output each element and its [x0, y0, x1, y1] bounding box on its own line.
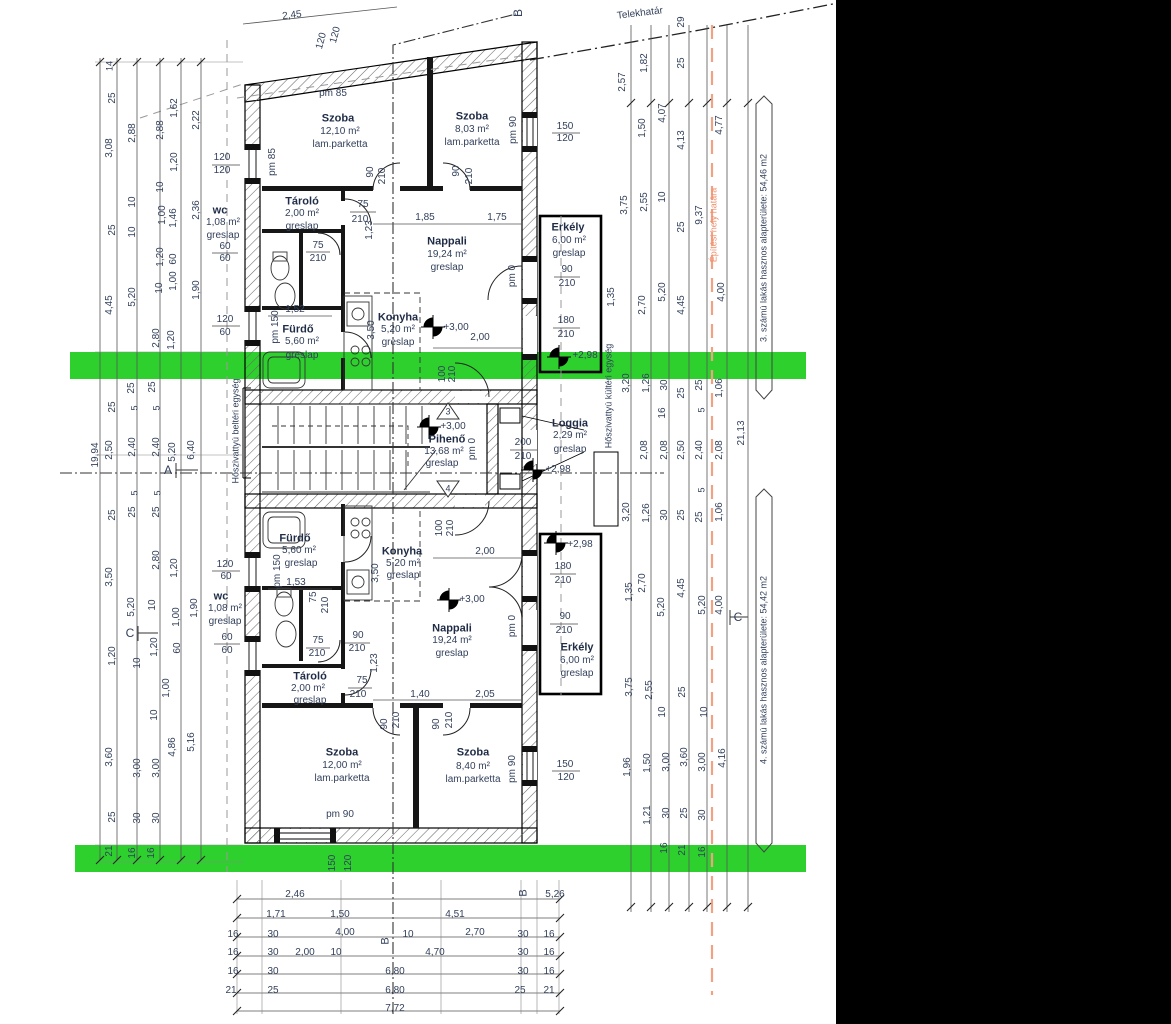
dim-label: 210	[559, 279, 576, 289]
dim-label: 3,00	[152, 758, 162, 777]
room-name: Szoba	[326, 748, 358, 759]
dim-label: 4,00	[717, 282, 727, 301]
dim-label: pm 150	[273, 554, 283, 587]
dim-label: 30	[152, 812, 162, 823]
dim-label: 7,72	[385, 1004, 404, 1014]
dim-label: 2,00	[470, 333, 489, 343]
dim-label: 90	[366, 166, 376, 177]
dim-label: 2,22	[192, 110, 202, 129]
dim-label: 25	[127, 382, 137, 393]
dim-label: 30	[517, 930, 528, 940]
dim-label: 25	[677, 387, 687, 398]
dim-label: 1,26	[642, 373, 652, 392]
room-area: 5,60 m²	[282, 546, 316, 556]
room-area: 6,00 m²	[560, 656, 594, 666]
dim-label: 3,50	[367, 320, 377, 339]
room-name: Szoba	[322, 114, 354, 125]
dim-label: 1,35	[625, 582, 635, 601]
dim-label: 90	[380, 718, 390, 729]
dim-label: 30	[517, 948, 528, 958]
dim-label: 1,75	[487, 213, 506, 223]
room-area: 2,29 m²	[553, 431, 587, 441]
dim-label: 5,20	[168, 442, 178, 461]
dim-label: 3,20	[622, 502, 632, 521]
dim-label: 2,08	[660, 440, 670, 459]
dim-label: 2,40	[128, 437, 138, 456]
dim-label: 4,00	[335, 928, 354, 938]
dim-label: 16	[698, 846, 708, 857]
room-name: Konyha	[378, 313, 418, 324]
section-marker-c: C	[126, 627, 135, 639]
dim-label: 1,23	[370, 653, 380, 672]
dim-label: 3,20	[622, 373, 632, 392]
dim-label: 75	[356, 676, 367, 686]
dim-label: 30	[267, 948, 278, 958]
dim-label: 180	[558, 316, 575, 326]
dim-label: 4,70	[425, 948, 444, 958]
room-name: Fürdő	[279, 534, 310, 545]
room-area: 19,24 m²	[432, 636, 471, 646]
dim-label: 120	[217, 315, 234, 325]
dim-label: 2,70	[465, 928, 484, 938]
room-floor: greslap	[426, 459, 459, 469]
dim-label: 16	[227, 930, 238, 940]
room-floor: lam.parketta	[312, 140, 367, 150]
dim-label: 1,82	[640, 53, 650, 72]
dim-label: pm 90	[508, 755, 518, 783]
dim-label: 21	[225, 986, 236, 996]
dim-label: 60	[219, 328, 230, 338]
dim-label: 5,20	[658, 282, 668, 301]
dim-label: 1,96	[623, 757, 633, 776]
dim-label: 5,20	[127, 597, 137, 616]
dim-label: 2,40	[152, 437, 162, 456]
dim-label: 16	[147, 847, 157, 858]
room-area: 5,60 m²	[285, 337, 319, 347]
level-marker: +2,98	[572, 351, 597, 361]
dim-label: 60	[221, 646, 232, 656]
dim-label: 25	[267, 986, 278, 996]
dim-label: pm 90	[509, 116, 519, 144]
dim-label: 2,45	[282, 10, 303, 22]
dim-label: 210	[349, 644, 366, 654]
dim-label: 60	[169, 253, 179, 264]
apartment3-area-label: 3. számú lakás hasznos alapterülete: 54,…	[760, 154, 769, 342]
dim-label: 120	[315, 32, 329, 51]
room-name: wc	[214, 592, 229, 603]
dim-label: 75	[312, 241, 323, 251]
dim-label: 1,85	[415, 213, 434, 223]
dim-label: 180	[555, 562, 572, 572]
dim-label: 21	[678, 844, 688, 855]
dim-label: 10	[155, 282, 165, 293]
dim-label: 30	[660, 379, 670, 390]
dim-label: 1,50	[330, 910, 349, 920]
dim-label: 1,53	[286, 578, 305, 588]
dim-label: 2,70	[638, 573, 648, 592]
dim-label: 25	[680, 807, 690, 818]
dim-label: 210	[350, 690, 367, 700]
dim-label: 2,36	[192, 200, 202, 219]
dim-label: 21,13	[737, 420, 747, 445]
dim-label: 25	[108, 92, 118, 103]
dim-label: 2,55	[640, 192, 650, 211]
dim-label: 60	[173, 642, 183, 653]
room-floor: greslap	[554, 445, 587, 455]
section-marker-b: B	[519, 889, 530, 896]
dim-label: 75	[357, 200, 368, 210]
dim-label: 16	[543, 930, 554, 940]
dim-label: 120	[214, 166, 231, 176]
dim-label: 5,20	[698, 595, 708, 614]
dim-label: 210	[309, 649, 326, 659]
dim-label: 3,50	[105, 567, 115, 586]
dim-label: 14	[106, 61, 115, 71]
dim-label: pm 90	[326, 810, 354, 820]
dim-label: 2,40	[695, 440, 705, 459]
dim-label: 10	[156, 181, 166, 192]
room-name: Nappali	[432, 624, 472, 635]
dim-label: 1,26	[642, 503, 652, 522]
dim-label: 10	[148, 599, 158, 610]
dim-label: 150	[557, 122, 574, 132]
dim-label: 30	[267, 930, 278, 940]
dim-label: 5	[154, 490, 163, 495]
room-area: 12,10 m²	[320, 127, 359, 137]
dim-label: 10	[658, 191, 668, 202]
dim-label: 210	[321, 597, 331, 614]
dim-label: 1,90	[190, 598, 200, 617]
room-area: 12,00 m²	[322, 761, 361, 771]
dim-label: 4,45	[677, 295, 687, 314]
dim-label: 1,00	[169, 271, 179, 290]
dim-label: 21	[105, 845, 115, 856]
room-area: 13,68 m²	[424, 447, 463, 457]
dim-label: 210	[310, 254, 327, 264]
apartment4-area-label: 4. számú lakás hasznos alapterülete: 54,…	[760, 576, 769, 764]
dim-label: 210	[446, 520, 456, 537]
dim-label: 1,23	[365, 220, 375, 239]
room-area: 1,08 m²	[208, 604, 242, 614]
dim-label: 200	[515, 438, 532, 448]
dim-label: 4,13	[677, 130, 687, 149]
dim-label: 1,20	[167, 330, 177, 349]
dim-label: 29	[677, 16, 687, 27]
section-marker-a: A	[164, 464, 172, 476]
dim-label: 1,06	[715, 502, 725, 521]
dim-label: 2,70	[638, 295, 648, 314]
dim-label: 210	[555, 576, 572, 586]
dim-label: 4,51	[445, 910, 464, 920]
room-area: 8,40 m²	[456, 762, 490, 772]
room-floor: lam.parketta	[444, 138, 499, 148]
black-panel	[836, 0, 1171, 1024]
room-area: 2,00 m²	[285, 209, 319, 219]
dim-label: 1,52	[285, 305, 304, 315]
room-name: Nappali	[427, 237, 467, 248]
room-floor: greslap	[286, 222, 319, 232]
dim-label: 30	[662, 807, 672, 818]
room-name: Pihenő	[429, 435, 466, 446]
dim-label: 210	[392, 712, 402, 729]
dim-label: 1,40	[410, 690, 429, 700]
dim-label: 16	[227, 948, 238, 958]
dim-label: 210	[378, 168, 388, 185]
room-name: Erkély	[560, 643, 593, 654]
room-area: 19,24 m²	[427, 250, 466, 260]
dim-label: 3,75	[625, 677, 635, 696]
dim-label: 21	[543, 986, 554, 996]
section-triangle: 4	[445, 485, 450, 494]
dim-label: 2,80	[152, 550, 162, 569]
dim-label: 5,20	[128, 287, 138, 306]
room-floor: lam.parketta	[445, 775, 500, 785]
dim-label: 210	[556, 626, 573, 636]
dim-label: 120	[329, 26, 343, 45]
dim-label: 16	[543, 967, 554, 977]
dim-label: 4,77	[715, 115, 725, 134]
dim-label: 2,08	[640, 440, 650, 459]
dim-label: 16	[660, 842, 670, 853]
dim-label: 25	[152, 506, 162, 517]
dim-label: 5	[131, 490, 140, 495]
section-marker-b: B	[512, 9, 524, 17]
dim-label: 5	[153, 405, 162, 410]
dim-label: 3,60	[680, 747, 690, 766]
dim-label: 25	[108, 811, 118, 822]
dim-label: 5	[698, 407, 707, 412]
dim-label: 2,88	[156, 120, 166, 139]
room-name: Fürdő	[282, 325, 313, 336]
dim-label: 1,90	[192, 280, 202, 299]
dim-label: 25	[108, 401, 118, 412]
dim-label: 25	[108, 509, 118, 520]
dim-label: 60	[219, 254, 230, 264]
dim-label: 30	[133, 812, 143, 823]
room-name: Szoba	[456, 112, 488, 123]
room-area: 8,03 m²	[455, 125, 489, 135]
dim-label: 30	[660, 509, 670, 520]
dim-label: 10	[658, 706, 668, 717]
dim-label: 2,55	[645, 680, 655, 699]
room-floor: greslap	[209, 617, 242, 627]
dim-label: 3,00	[133, 758, 143, 777]
room-floor: greslap	[387, 571, 420, 581]
construction-limit-label: Építési hely határa	[710, 188, 719, 263]
dim-label: 2,08	[715, 440, 725, 459]
room-floor: greslap	[207, 231, 240, 241]
room-name: wc	[213, 206, 228, 217]
dim-label: 210	[445, 712, 455, 729]
dim-label: 25	[148, 381, 158, 392]
room-floor: lam.parketta	[314, 774, 369, 784]
dim-label: 10	[133, 657, 143, 668]
room-area: 1,08 m²	[206, 218, 240, 228]
dim-label: 16	[128, 847, 138, 858]
floorplan-page: 2,45120120BTelekhatár19,9414253,08254,45…	[0, 0, 1171, 1024]
dim-label: 90	[452, 165, 462, 176]
dim-label: pm 0	[508, 615, 518, 637]
dim-label: 1,00	[158, 205, 168, 224]
dim-label: 10	[330, 948, 341, 958]
dim-label: 6,40	[187, 440, 197, 459]
room-name: Tároló	[293, 672, 327, 683]
dim-label: 60	[221, 633, 232, 643]
dim-label: 90	[559, 612, 570, 622]
dim-label: 90	[352, 631, 363, 641]
level-marker: +3,00	[440, 422, 465, 432]
dim-label: 25	[695, 379, 705, 390]
dim-label: 90	[561, 265, 572, 275]
room-floor: greslap	[294, 696, 327, 706]
room-name: Loggia	[552, 419, 588, 430]
plot-boundary-label: Telekhatár	[616, 6, 663, 22]
dim-label: 25	[677, 221, 687, 232]
level-marker: +3,00	[443, 323, 468, 333]
room-name: Tároló	[285, 197, 319, 208]
dim-label: 25	[695, 511, 705, 522]
room-floor: greslap	[436, 649, 469, 659]
dim-label: 2,50	[105, 440, 115, 459]
dim-label: 9,37	[695, 205, 705, 224]
dim-label: 10	[128, 226, 138, 237]
dim-label: 210	[448, 366, 458, 383]
dim-label: 2,50	[677, 440, 687, 459]
dim-label: 4,86	[168, 737, 178, 756]
dim-label: 1,50	[638, 118, 648, 137]
room-area: 5,20 m²	[386, 559, 420, 569]
dim-label: 16	[658, 407, 668, 418]
dim-label: 2,57	[618, 72, 628, 91]
dim-label: 3,75	[620, 195, 630, 214]
dim-label: 150	[557, 760, 574, 770]
dim-label: 1,50	[643, 753, 653, 772]
dim-label: 4,07	[658, 103, 668, 122]
dim-label: 120	[557, 134, 574, 144]
dim-label: 3,00	[698, 752, 708, 771]
dim-label: 5,16	[187, 732, 197, 751]
dim-label: 25	[677, 509, 687, 520]
heat-pump-indoor-label: Hőszivattyú beltéri egység	[232, 378, 241, 483]
dim-label: 1,20	[170, 558, 180, 577]
dim-label: 1,21	[643, 805, 653, 824]
room-area: 2,00 m²	[291, 684, 325, 694]
dim-label: 25	[514, 986, 525, 996]
dim-label: 4,45	[677, 578, 687, 597]
level-marker: +3,00	[459, 595, 484, 605]
room-floor: greslap	[431, 263, 464, 273]
dim-label: 2,80	[152, 328, 162, 347]
dim-label: 2,88	[128, 123, 138, 142]
dim-label: 60	[220, 572, 231, 582]
dim-label: 10	[128, 196, 138, 207]
dim-label: 25	[108, 224, 118, 235]
dim-label: 30	[517, 967, 528, 977]
dim-label: 30	[698, 809, 708, 820]
dim-label: 1,00	[162, 678, 172, 697]
dim-label: 1,00	[172, 607, 182, 626]
room-name: Konyha	[382, 547, 422, 558]
dim-label: 2,46	[285, 890, 304, 900]
dim-label: 4,45	[105, 295, 115, 314]
dim-label: 1,35	[607, 287, 617, 306]
dim-label: 1,06	[715, 378, 725, 397]
room-area: 6,00 m²	[552, 236, 586, 246]
dim-label: 210	[558, 330, 575, 340]
level-marker: +2,98	[545, 465, 570, 475]
dim-label: pm 150	[271, 310, 281, 343]
dim-label: 16	[543, 948, 554, 958]
room-name: Erkély	[551, 223, 584, 234]
room-floor: greslap	[285, 559, 318, 569]
dim-label: 10	[700, 706, 710, 717]
dim-label: 4,16	[718, 748, 728, 767]
dim-label: 5,20	[657, 597, 667, 616]
dim-label: 10	[402, 930, 413, 940]
section-marker-c: C	[734, 611, 743, 623]
dim-label: 120	[558, 773, 575, 783]
dim-label: 3,00	[662, 752, 672, 771]
dim-label: 3,08	[105, 138, 115, 157]
dim-label: pm 85	[319, 89, 347, 99]
dim-label: 120	[344, 855, 354, 872]
room-name: Szoba	[457, 748, 489, 759]
dim-label: 1,20	[156, 247, 166, 266]
room-floor: greslap	[561, 669, 594, 679]
dim-label: 16	[227, 967, 238, 977]
dim-label: 19,94	[91, 442, 101, 467]
dim-label: 10	[150, 709, 160, 720]
dim-label: 1,62	[170, 98, 180, 117]
dim-label: 6,80	[385, 967, 404, 977]
dim-label: 2,00	[475, 547, 494, 557]
room-floor: greslap	[286, 351, 319, 361]
dim-label: 100	[435, 520, 445, 537]
dim-label: 30	[267, 967, 278, 977]
room-floor: greslap	[382, 338, 415, 348]
dim-label: 150	[328, 855, 338, 872]
dim-label: 2,00	[295, 948, 314, 958]
dim-label: 60	[219, 242, 230, 252]
dim-label: 1,20	[170, 152, 180, 171]
heat-pump-outdoor-label: Hőszivattyú kültéri egység	[605, 344, 614, 449]
dim-label: 120	[217, 560, 234, 570]
dim-label: 3,60	[105, 747, 115, 766]
room-area: 5,20 m²	[381, 325, 415, 335]
dim-label: 25	[128, 506, 138, 517]
section-triangle: 3	[445, 408, 450, 417]
dim-label: 25	[677, 57, 687, 68]
dim-label: 1,20	[150, 637, 160, 656]
dim-label: 1,71	[266, 910, 285, 920]
dim-label: 4,00	[715, 595, 725, 614]
dim-label: 75	[309, 591, 319, 602]
dim-label: 5	[698, 487, 707, 492]
dim-label: 2,05	[475, 690, 494, 700]
level-marker: +2,98	[567, 540, 592, 550]
dim-label: 5	[131, 405, 140, 410]
dim-label: 6,80	[385, 986, 404, 996]
dim-label: 210	[515, 452, 532, 462]
dim-label: pm 85	[268, 148, 278, 176]
dim-label: 1,20	[108, 646, 118, 665]
dim-label: pm 0	[468, 438, 478, 460]
dim-label: 120	[214, 153, 231, 163]
room-floor: greslap	[553, 249, 586, 259]
section-marker-b: B	[381, 937, 392, 944]
dim-label: 90	[432, 718, 442, 729]
dim-label: 5,26	[545, 890, 564, 900]
